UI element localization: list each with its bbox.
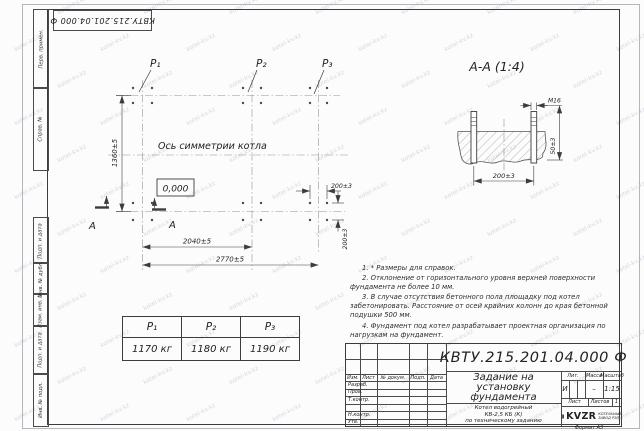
- load-table-value: 1190 кг: [241, 338, 299, 360]
- kvzr-logo-icon: [561, 411, 564, 422]
- tb-header-list: Лист: [360, 374, 377, 381]
- tb-staff-razrab: Разраб.: [346, 381, 379, 389]
- load-label-p3: P₃: [322, 58, 333, 70]
- logo-caption-line: ЗАВОД РЭП: [598, 416, 621, 420]
- tb-header-data: Дата: [427, 374, 446, 381]
- logo-text: KVZR: [566, 411, 596, 422]
- dim-2770: 2770±5: [216, 256, 245, 264]
- tb-line: [577, 380, 578, 398]
- load-table-header: P₃: [241, 317, 299, 338]
- dim-1360: 1360±5: [111, 138, 119, 167]
- tb-product-name: Котел водогрейный КВ-2,5 КБ (К) по техни…: [446, 404, 561, 426]
- note-1: 1. * Размеры для справок.: [350, 264, 630, 273]
- tb-header-izm: Изм.: [346, 374, 360, 381]
- load-label-p1: P₁: [150, 58, 161, 70]
- anchor-bolt-points: [132, 87, 328, 221]
- plan-dimension-lines: [116, 96, 344, 266]
- tb-staff-prov: Пров.: [346, 389, 379, 397]
- tb-sheet-label: Лист: [561, 398, 588, 406]
- load-table: P₁ P₂ P₃ 1170 кг 1180 кг 1190 кг: [122, 316, 300, 361]
- dim-200-section: 200±3: [493, 172, 515, 180]
- section-cut-marks: [95, 196, 166, 210]
- tb-doc-number: КВТУ.215.201.04.000 Ф: [446, 344, 621, 371]
- tb-title-line: установку: [477, 383, 531, 393]
- plan-axes: [108, 80, 350, 270]
- tb-staff-empty: [346, 404, 379, 412]
- load-table-value: 1170 кг: [123, 338, 182, 360]
- tb-staff-nkontr: Н.контр.: [346, 411, 379, 419]
- tb-mass-value: –: [585, 380, 603, 398]
- tb-sheets-value: 1: [612, 398, 621, 406]
- tb-product-line: по техническому заданию: [465, 418, 542, 425]
- tb-line: [409, 344, 410, 426]
- elevation-value: 0,000: [163, 185, 189, 195]
- tb-doc-title: Задание на установку фундамента: [446, 372, 561, 403]
- technical-notes: 1. * Размеры для справок. 2. Отклонение …: [350, 264, 630, 341]
- tb-staff-tkontr: Т.контр.: [346, 396, 379, 404]
- load-table-value: 1180 кг: [182, 338, 241, 360]
- tb-lit-value: И: [561, 380, 569, 398]
- tb-scale-value: 1:15: [603, 380, 621, 398]
- tb-product-line: Котел водогрейный: [475, 405, 533, 412]
- tb-line: [346, 359, 446, 360]
- load-table-value-row: 1170 кг 1180 кг 1190 кг: [123, 338, 299, 360]
- logo-caption: КОТЕЛЬНЫЙ ЗАВОД РЭП: [598, 412, 621, 420]
- load-table-header-row: P₁ P₂ P₃: [123, 317, 299, 338]
- tb-product-line: КВ-2,5 КБ (К): [485, 412, 523, 419]
- load-table-header: P₂: [182, 317, 241, 338]
- note-3: 3. В случае отсутствия бетонного пола пл…: [350, 293, 630, 320]
- symmetry-axis-label: Ось симметрии котла: [158, 141, 267, 152]
- dim-2040: 2040±5: [183, 238, 212, 246]
- tb-title-line: фундамента: [470, 393, 536, 403]
- tb-line: [427, 344, 428, 426]
- tb-lit-label: Лит.: [561, 371, 585, 380]
- section-letter-2: А: [168, 220, 176, 231]
- dim-200-horizontal: 200±3: [331, 183, 352, 190]
- drawing-sheet: { "watermark": { "text": "kotel-kv.kz" }…: [0, 0, 644, 430]
- company-logo: KVZR КОТЕЛЬНЫЙ ЗАВОД РЭП: [561, 406, 621, 426]
- section-letter-1: А: [88, 221, 96, 232]
- title-block: Изм. Лист № докум. Подп. Дата Разраб. Пр…: [345, 343, 622, 427]
- note-2: 2. Отклонение от горизонтального уровня …: [350, 274, 630, 292]
- tb-header-ndokum: № докум.: [377, 374, 409, 381]
- tb-sheets-label: Листов: [588, 398, 612, 406]
- dim-200-vertical: 200±3: [342, 228, 349, 249]
- dim-50: 50±3: [550, 137, 557, 154]
- tb-staff-utv: Утв.: [346, 419, 379, 427]
- load-table-header: P₁: [123, 317, 182, 338]
- load-leaders: [139, 70, 324, 94]
- load-label-p2: P₂: [256, 58, 267, 70]
- section-view-title: А-А (1:4): [468, 59, 524, 74]
- note-4: 4. Фундамент под котел разрабатывает про…: [350, 322, 630, 340]
- tb-line: [569, 380, 570, 398]
- tb-title-line: Задание на: [473, 373, 534, 383]
- tb-header-podp: Подп.: [409, 374, 427, 381]
- bolt-thread-label: М16: [548, 98, 561, 105]
- tb-scale-label: Масштаб: [603, 371, 621, 380]
